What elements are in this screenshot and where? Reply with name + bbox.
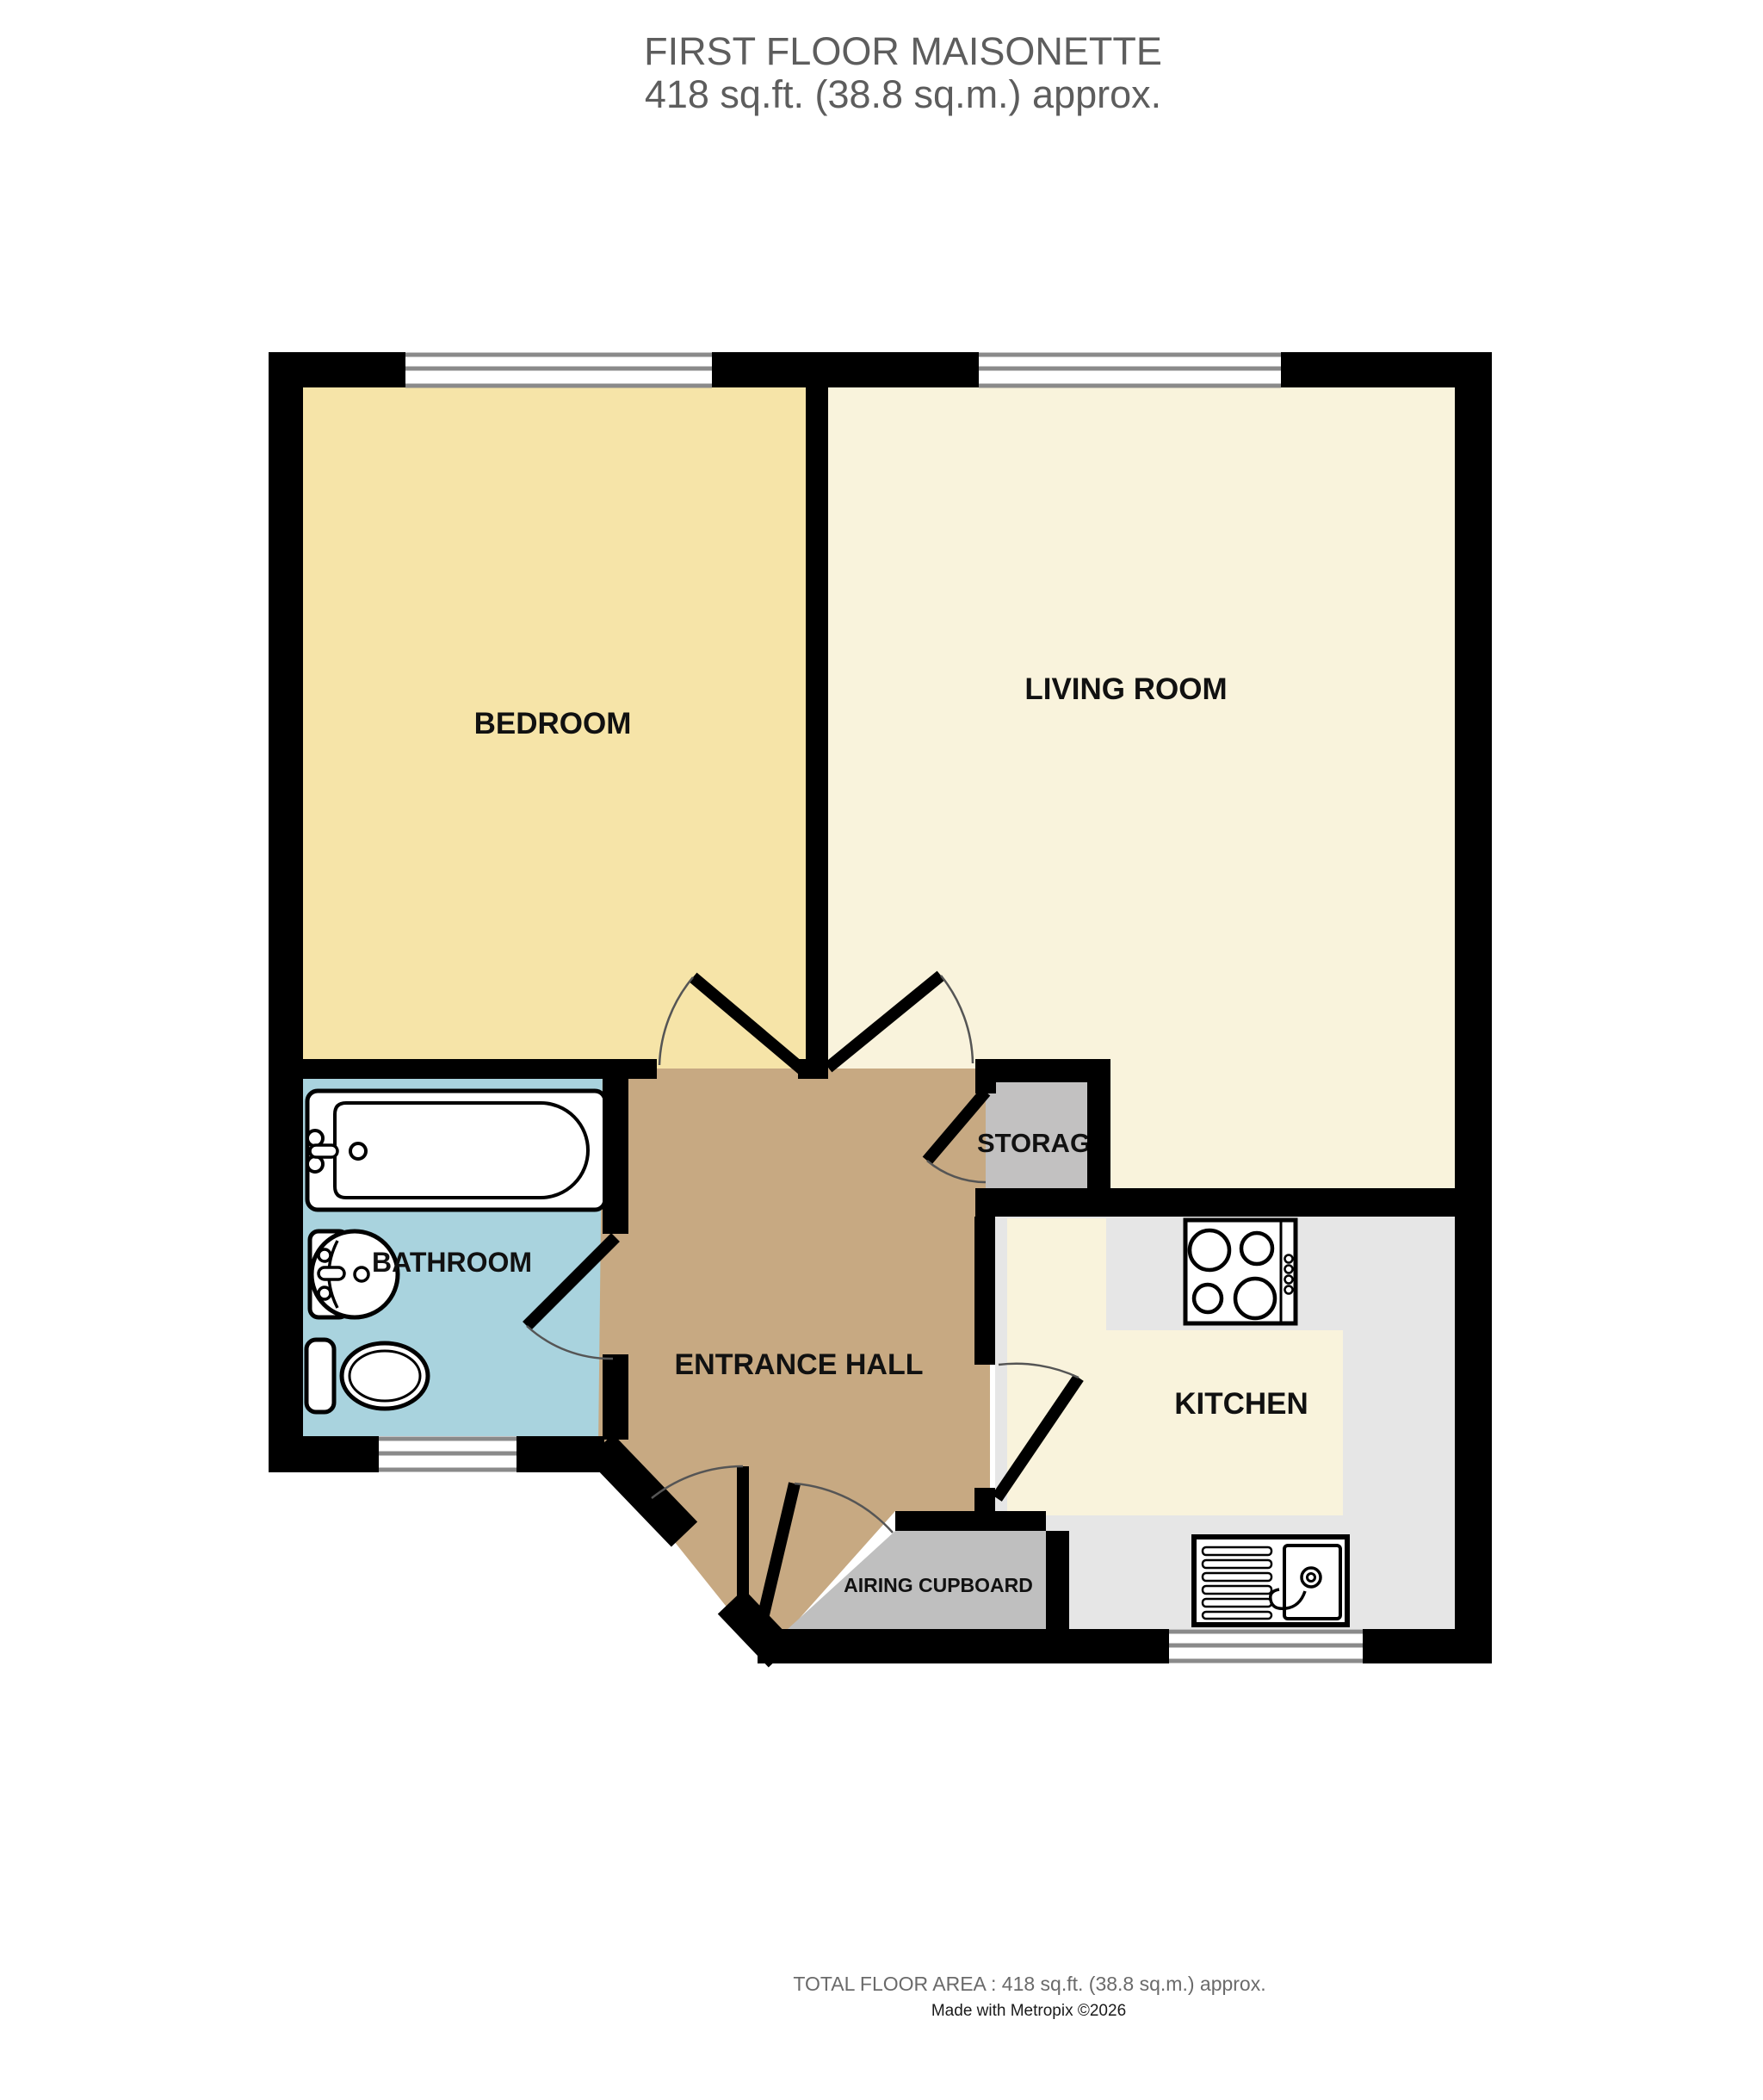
floorplan-page: STORAGE bbox=[0, 0, 1763, 2100]
wall-bathroom-right-upper bbox=[603, 1079, 628, 1234]
wall-kitchen-left-stub bbox=[974, 1488, 995, 1511]
airing-cupboard-label: AIRING CUPBOARD bbox=[844, 1574, 1033, 1596]
sink-drainer-icon bbox=[1194, 1537, 1347, 1625]
bedroom-label: BEDROOM bbox=[474, 707, 632, 740]
plan-footer: TOTAL FLOOR AREA : 418 sq.ft. (38.8 sq.m… bbox=[793, 1973, 1265, 2020]
floorplan-canvas: STORAGE bbox=[0, 0, 1763, 2100]
plan-title: FIRST FLOOR MAISONETTE 418 sq.ft. (38.8 … bbox=[644, 29, 1162, 116]
metropix-credit-text: Made with Metropix ©2026 bbox=[931, 2002, 1126, 2020]
wall-storage-right bbox=[1087, 1079, 1110, 1197]
wall-left bbox=[269, 352, 303, 1472]
wall-kitchen-left-upper bbox=[974, 1217, 995, 1365]
wall-kitchen-bottom bbox=[758, 1629, 1492, 1663]
wall-right bbox=[1455, 352, 1492, 1663]
plan-title-line1: FIRST FLOOR MAISONETTE bbox=[644, 29, 1162, 73]
wall-bathroom-right-lower bbox=[603, 1354, 628, 1440]
wall-cupboard-right bbox=[1046, 1531, 1069, 1629]
bathroom-label: BATHROOM bbox=[372, 1247, 532, 1278]
hob-icon bbox=[1185, 1220, 1296, 1323]
plan-title-line2: 418 sq.ft. (38.8 sq.m.) approx. bbox=[645, 72, 1161, 116]
wall-storage-top bbox=[975, 1059, 1110, 1082]
wall-bedroom-living-divider bbox=[806, 387, 828, 1079]
total-floor-area-text: TOTAL FLOOR AREA : 418 sq.ft. (38.8 sq.m… bbox=[793, 1973, 1265, 1995]
kitchen-label: KITCHEN bbox=[1174, 1387, 1308, 1421]
wall-living-kitchen bbox=[975, 1188, 1455, 1217]
living-room-label: LIVING ROOM bbox=[1024, 672, 1227, 706]
wall-bedroom-bathroom bbox=[269, 1059, 657, 1079]
bath-icon bbox=[307, 1091, 605, 1210]
toilet-icon bbox=[306, 1340, 428, 1412]
entrance-hall-label: ENTRANCE HALL bbox=[675, 1348, 924, 1381]
wall-cupboard-top bbox=[895, 1511, 1046, 1531]
